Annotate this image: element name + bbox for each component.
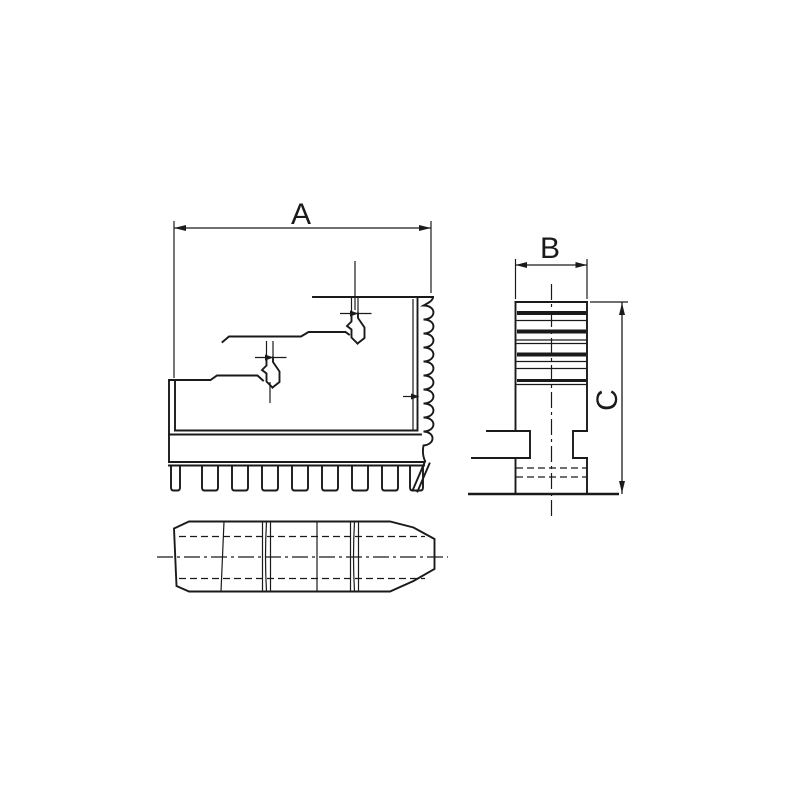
guideway-notch-right <box>573 431 587 458</box>
front-view: B <box>468 232 628 517</box>
dim-b-arrow-left <box>516 262 528 268</box>
rack-teeth <box>169 466 424 491</box>
dim-c-arrow-top <box>619 303 625 315</box>
dim-b-arrow-right <box>576 262 588 268</box>
dim-a-arrow-right <box>419 225 431 231</box>
dimension-b-label: B <box>540 232 560 265</box>
dimension-a: A <box>174 198 431 378</box>
dimension-a-label: A <box>291 198 311 231</box>
serration-hook-detail-2 <box>255 341 287 388</box>
side-view: A <box>169 198 433 492</box>
plan-view <box>157 522 448 592</box>
dim-c-arrow-bottom <box>619 481 625 493</box>
drawing-page: A <box>0 0 800 800</box>
guideway-notch-left <box>472 431 530 458</box>
dimension-c-label: C <box>591 389 624 411</box>
technical-drawing: A <box>0 0 800 800</box>
dimension-c: C <box>590 302 628 494</box>
step-2-edge <box>223 332 350 342</box>
body-left-edge <box>169 380 175 462</box>
step-3-edge <box>175 376 263 381</box>
dim-a-arrow-left <box>174 225 186 231</box>
